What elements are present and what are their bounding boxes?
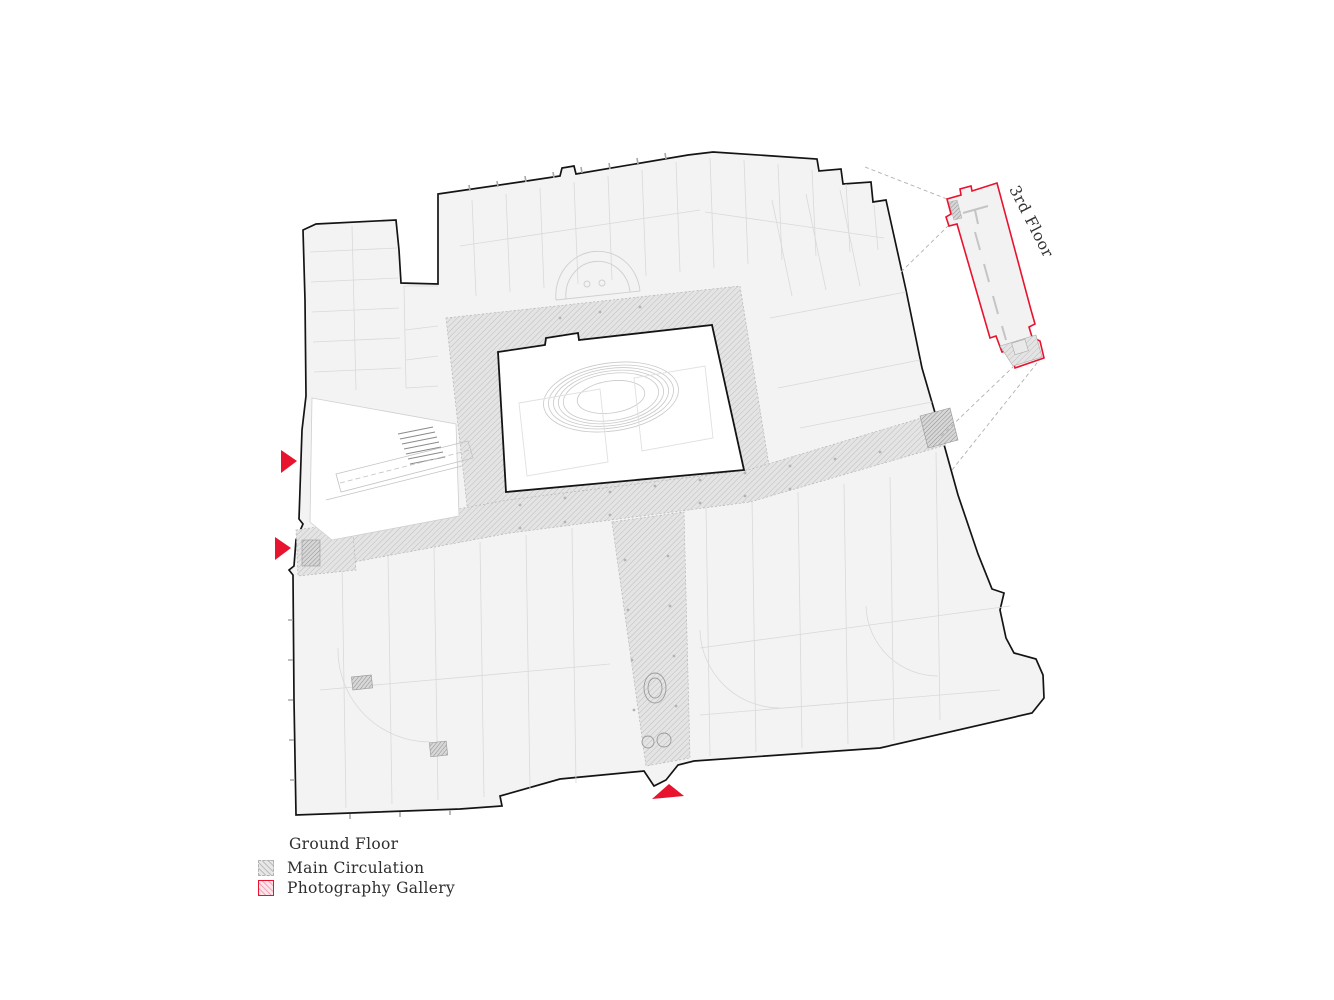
legend-item-photography-gallery: Photography Gallery [258, 879, 455, 897]
legend-item-main-circulation: Main Circulation [258, 859, 424, 877]
south-entrance-arrow [652, 784, 684, 799]
west-entrance-arrow-lower [275, 537, 291, 560]
ground-floor-plan [288, 152, 1044, 819]
main-circulation-swatch-icon [258, 860, 274, 876]
legend-item-label: Main Circulation [287, 859, 424, 877]
legend-title: Ground Floor [289, 835, 398, 853]
garden-courtyard [498, 325, 744, 492]
floor-plan-page: 3rd Floor Ground Floor Main Circulation … [0, 0, 1334, 1000]
west-entrance-arrow-upper [281, 450, 297, 473]
photography-gallery-swatch-icon [258, 880, 274, 896]
legend-item-label: Photography Gallery [287, 879, 455, 897]
floor-plan-canvas: 3rd Floor [0, 0, 1334, 1000]
